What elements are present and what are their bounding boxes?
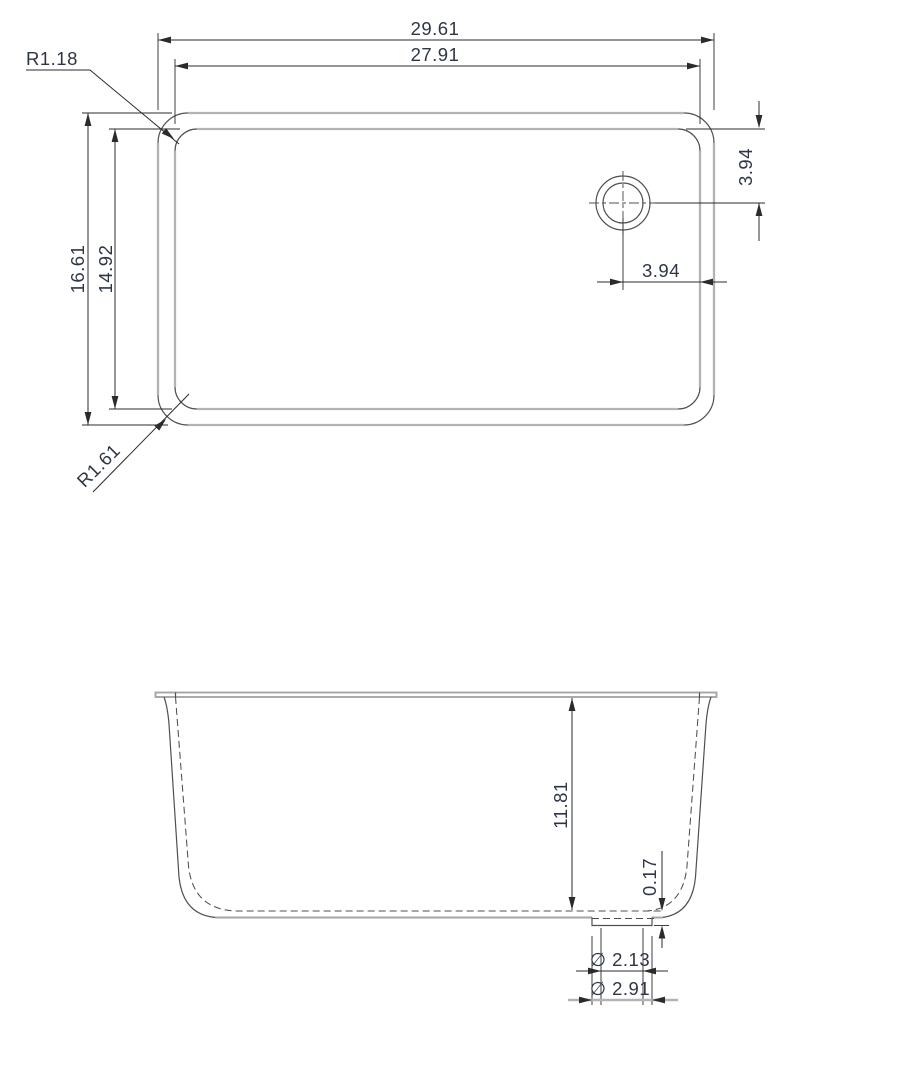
dim-drain-from-top: 3.94 <box>655 101 765 241</box>
dim-inner-width-label: 27.91 <box>411 44 460 65</box>
dim-inner-height-label: 14.92 <box>95 245 116 294</box>
sink-inner-surface-hidden <box>176 697 700 919</box>
dim-depth-label: 11.81 <box>550 781 571 828</box>
dim-drain-outer-diameter: ∅ 2.91 <box>568 978 678 1003</box>
radius-callout-inner: R1.18 <box>26 48 179 144</box>
top-view: 29.61 27.91 16.61 14.92 <box>26 18 765 492</box>
front-view: 11.81 0.17 ∅ 2.13 ∅ 2.91 <box>156 693 717 1006</box>
dim-drain-inner-diameter-label: ∅ 2.13 <box>590 949 650 970</box>
dim-boss-height-label: 0.17 <box>639 858 660 896</box>
sink-profile-right-wall <box>662 697 711 918</box>
dim-overall-height: 16.61 <box>67 113 172 425</box>
sink-engineering-drawing: 29.61 27.91 16.61 14.92 <box>0 0 905 1069</box>
dim-drain-inner-diameter: ∅ 2.13 <box>576 949 668 974</box>
sink-inner-corner-arcs <box>175 129 700 409</box>
dim-depth: 11.81 <box>550 698 575 910</box>
sink-outer-edge <box>158 113 714 425</box>
radius-inner-label: R1.18 <box>26 48 78 69</box>
sink-inner-edge <box>175 129 700 409</box>
dim-drain-from-right-label: 3.94 <box>642 260 680 281</box>
sink-profile-left-wall <box>164 697 216 918</box>
dim-inner-height: 14.92 <box>95 129 180 409</box>
dim-overall-height-label: 16.61 <box>67 245 88 294</box>
drawing-sheet: 29.61 27.91 16.61 14.92 <box>0 0 905 1069</box>
dim-drain-outer-diameter-label: ∅ 2.91 <box>590 978 650 999</box>
sink-outer-corner-arcs <box>158 113 714 425</box>
dim-boss-height: 0.17 <box>639 851 669 948</box>
sink-rim-flange <box>156 693 717 698</box>
dim-overall-width-label: 29.61 <box>411 18 460 39</box>
dim-drain-from-top-label: 3.94 <box>735 148 756 186</box>
radius-outer-label: R1.61 <box>73 440 125 492</box>
